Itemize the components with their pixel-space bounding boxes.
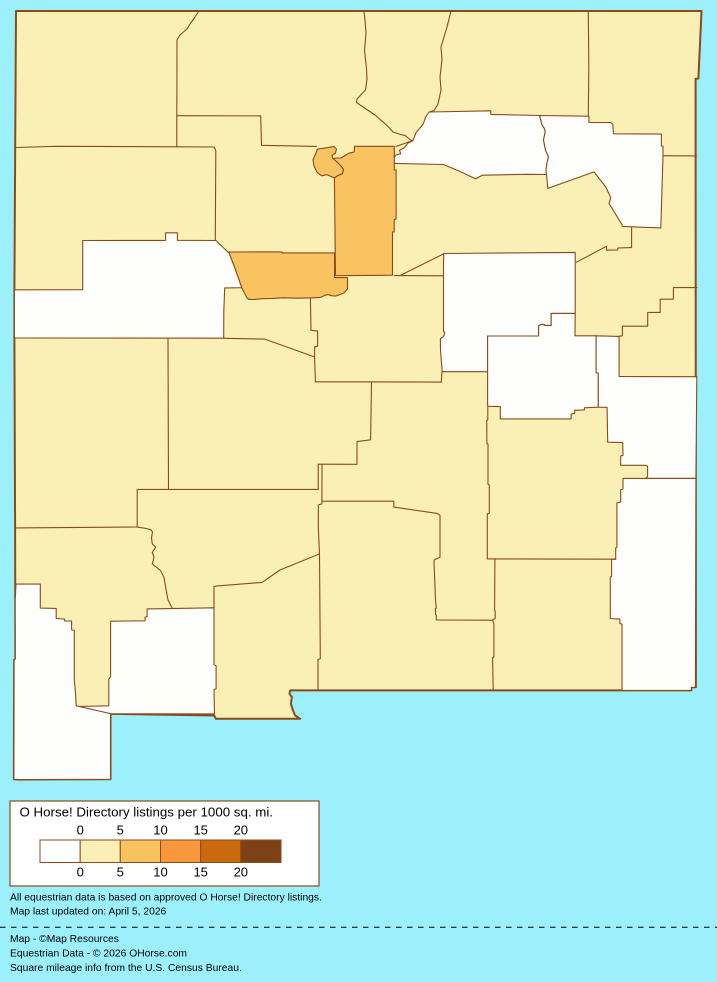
svg-text:Equestrian Data - © 2026 OHors: Equestrian Data - © 2026 OHorse.com <box>10 948 187 959</box>
svg-text:20: 20 <box>234 865 248 880</box>
svg-text:15: 15 <box>193 865 207 880</box>
svg-text:Square mileage info from the U: Square mileage info from the U.S. Census… <box>10 963 242 974</box>
svg-text:20: 20 <box>234 822 248 837</box>
svg-text:Map - ©Map Resources: Map - ©Map Resources <box>10 934 119 945</box>
svg-text:O Horse! Directory listings pe: O Horse! Directory listings per 1000 sq.… <box>20 805 273 820</box>
svg-text:10: 10 <box>153 865 167 880</box>
svg-text:0: 0 <box>77 822 84 837</box>
svg-text:5: 5 <box>117 865 124 880</box>
svg-text:All equestrian data is based o: All equestrian data is based on approved… <box>10 893 322 904</box>
svg-text:5: 5 <box>117 822 124 837</box>
svg-text:15: 15 <box>193 822 207 837</box>
svg-text:10: 10 <box>153 822 167 837</box>
svg-text:0: 0 <box>77 865 84 880</box>
svg-text:Map last updated on: April 5,: Map last updated on: April 5, 2026 <box>10 907 167 918</box>
